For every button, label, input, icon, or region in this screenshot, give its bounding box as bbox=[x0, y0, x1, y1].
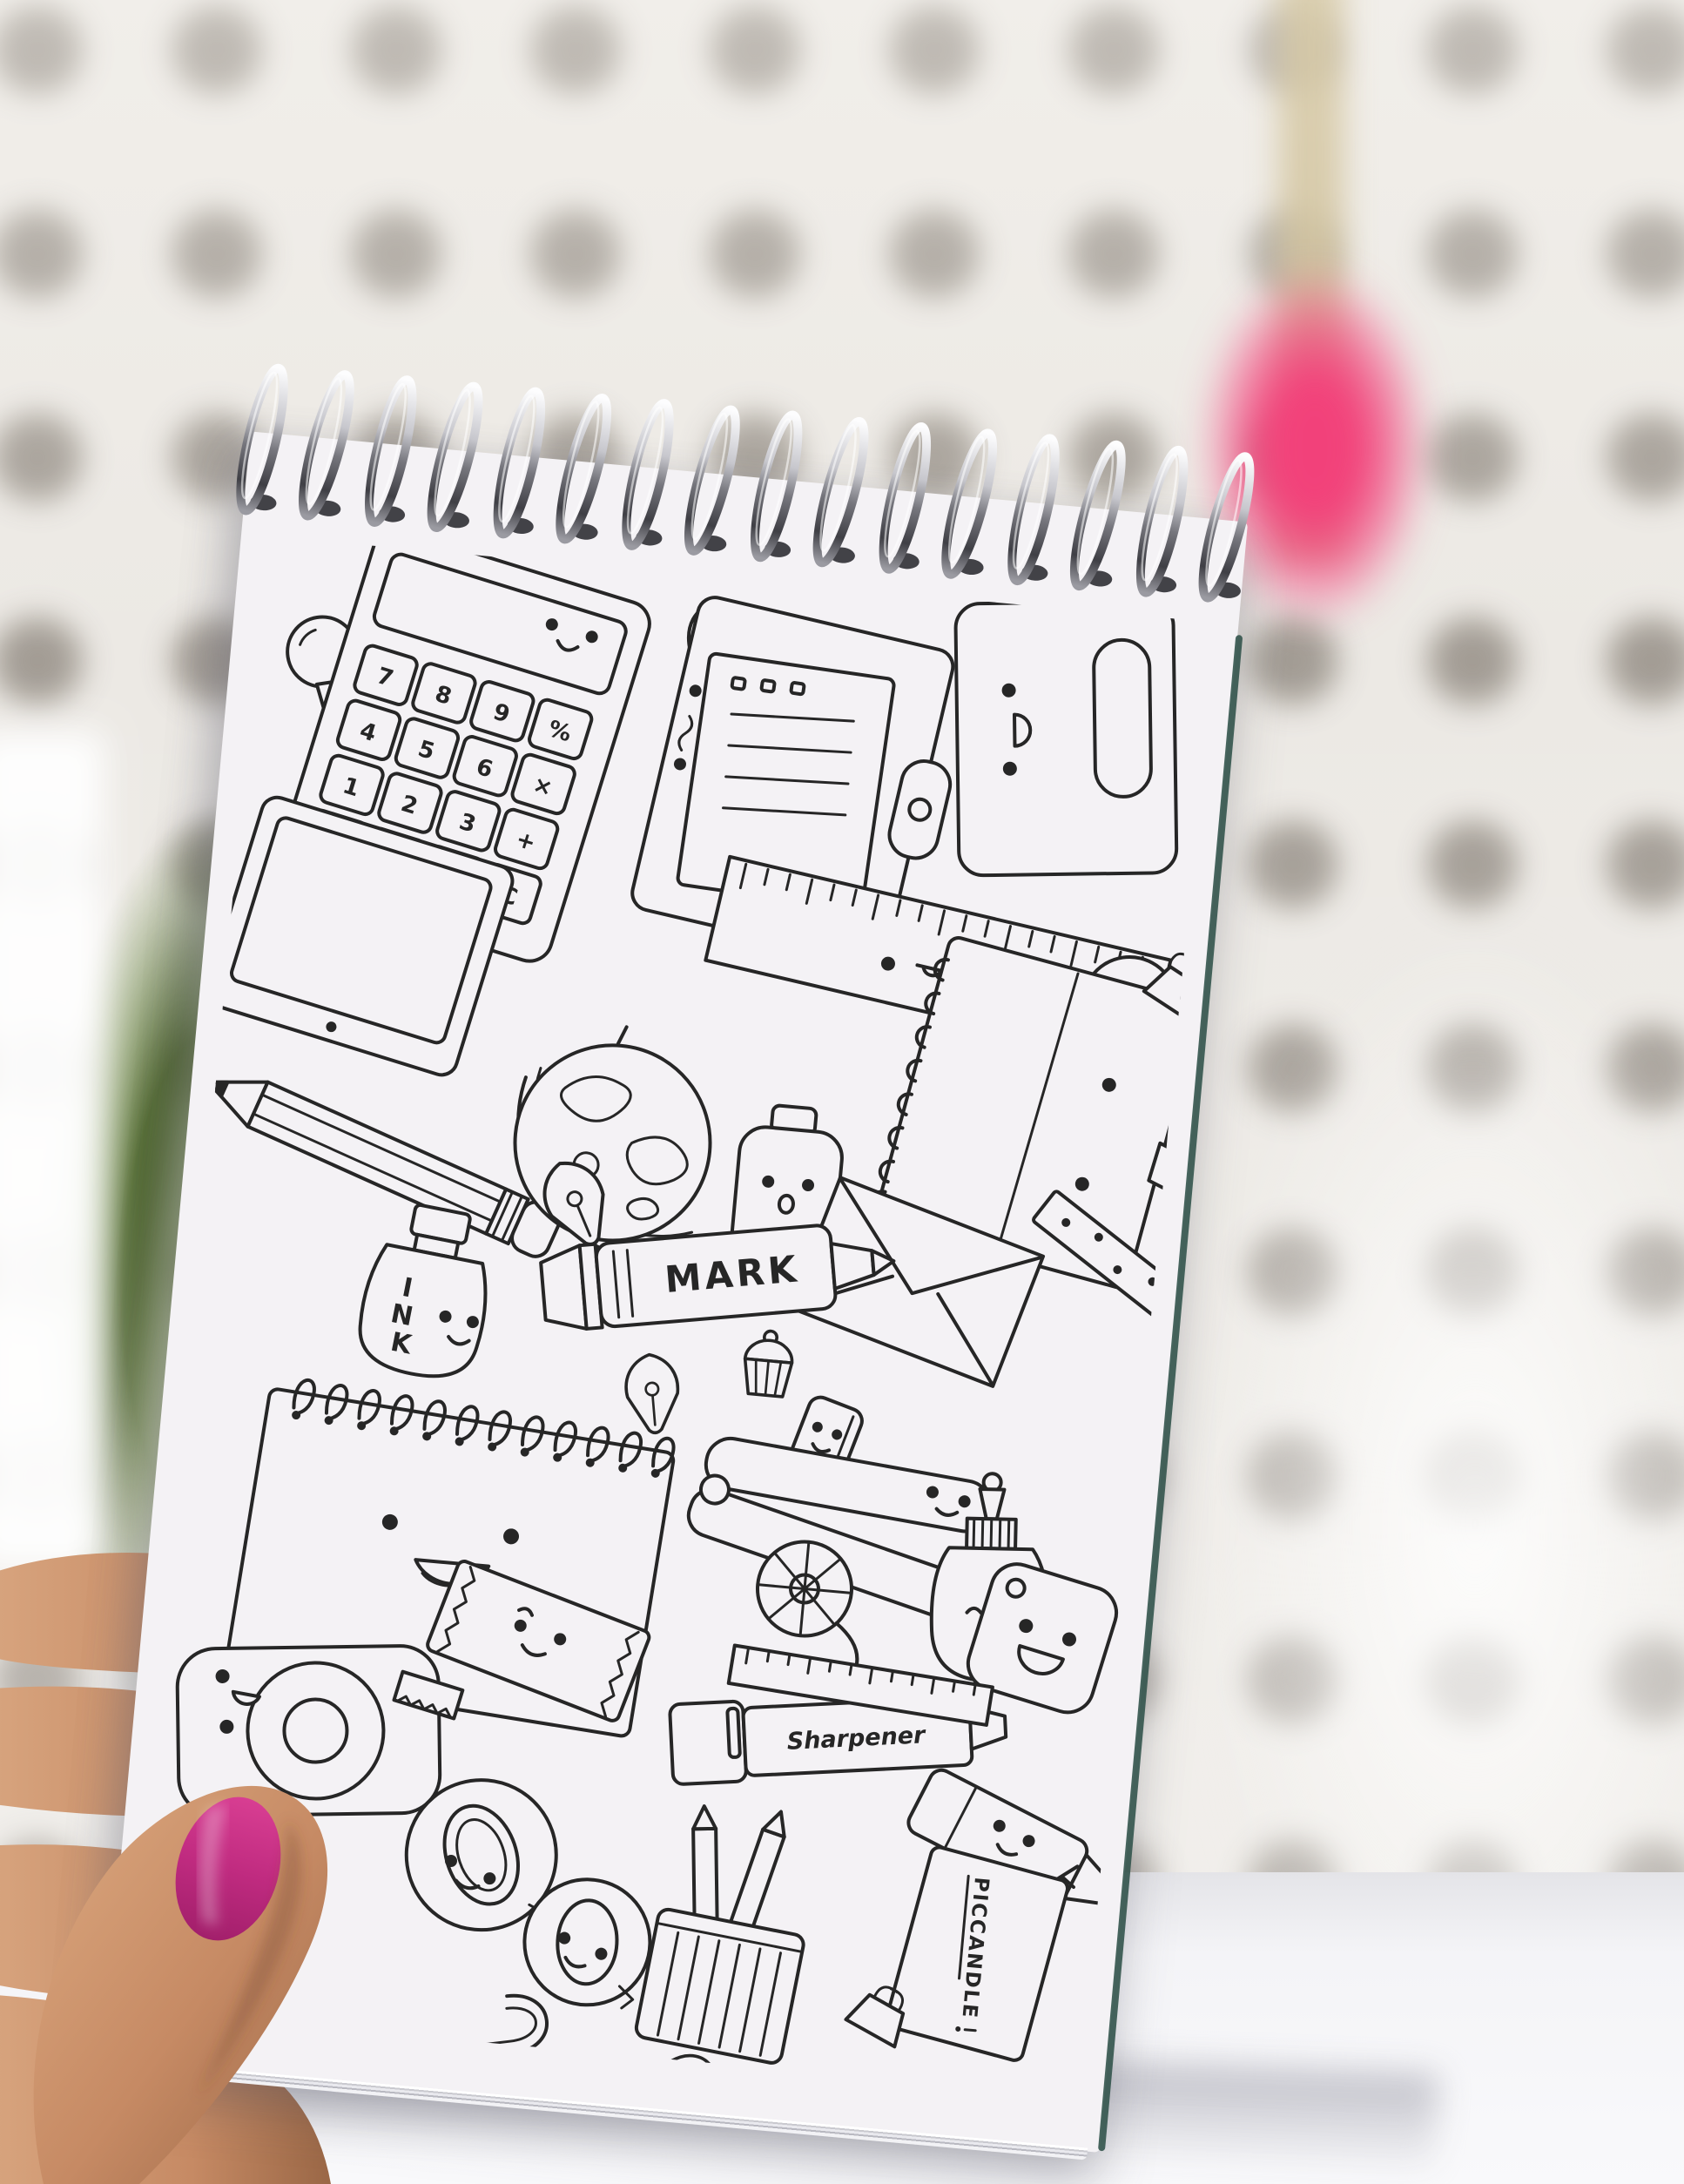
fountain-pen-nib2-doodle bbox=[623, 1352, 681, 1435]
pencil-cup-doodle bbox=[635, 1790, 829, 2065]
spiral-notepad: 789%456×123+0.=C bbox=[102, 431, 1248, 2152]
doodle-drawing: 789%456×123+0.=C bbox=[131, 536, 1215, 2096]
pencil-doodle bbox=[198, 1058, 563, 1261]
bottom-paper-clip-doodle bbox=[464, 1992, 550, 2058]
phone-tag-doodle bbox=[955, 601, 1176, 875]
photo-scene: 789%456×123+0.=C bbox=[0, 0, 1684, 2184]
overexposed-left-edge bbox=[0, 731, 104, 1567]
cupcake-doodle bbox=[742, 1329, 794, 1397]
